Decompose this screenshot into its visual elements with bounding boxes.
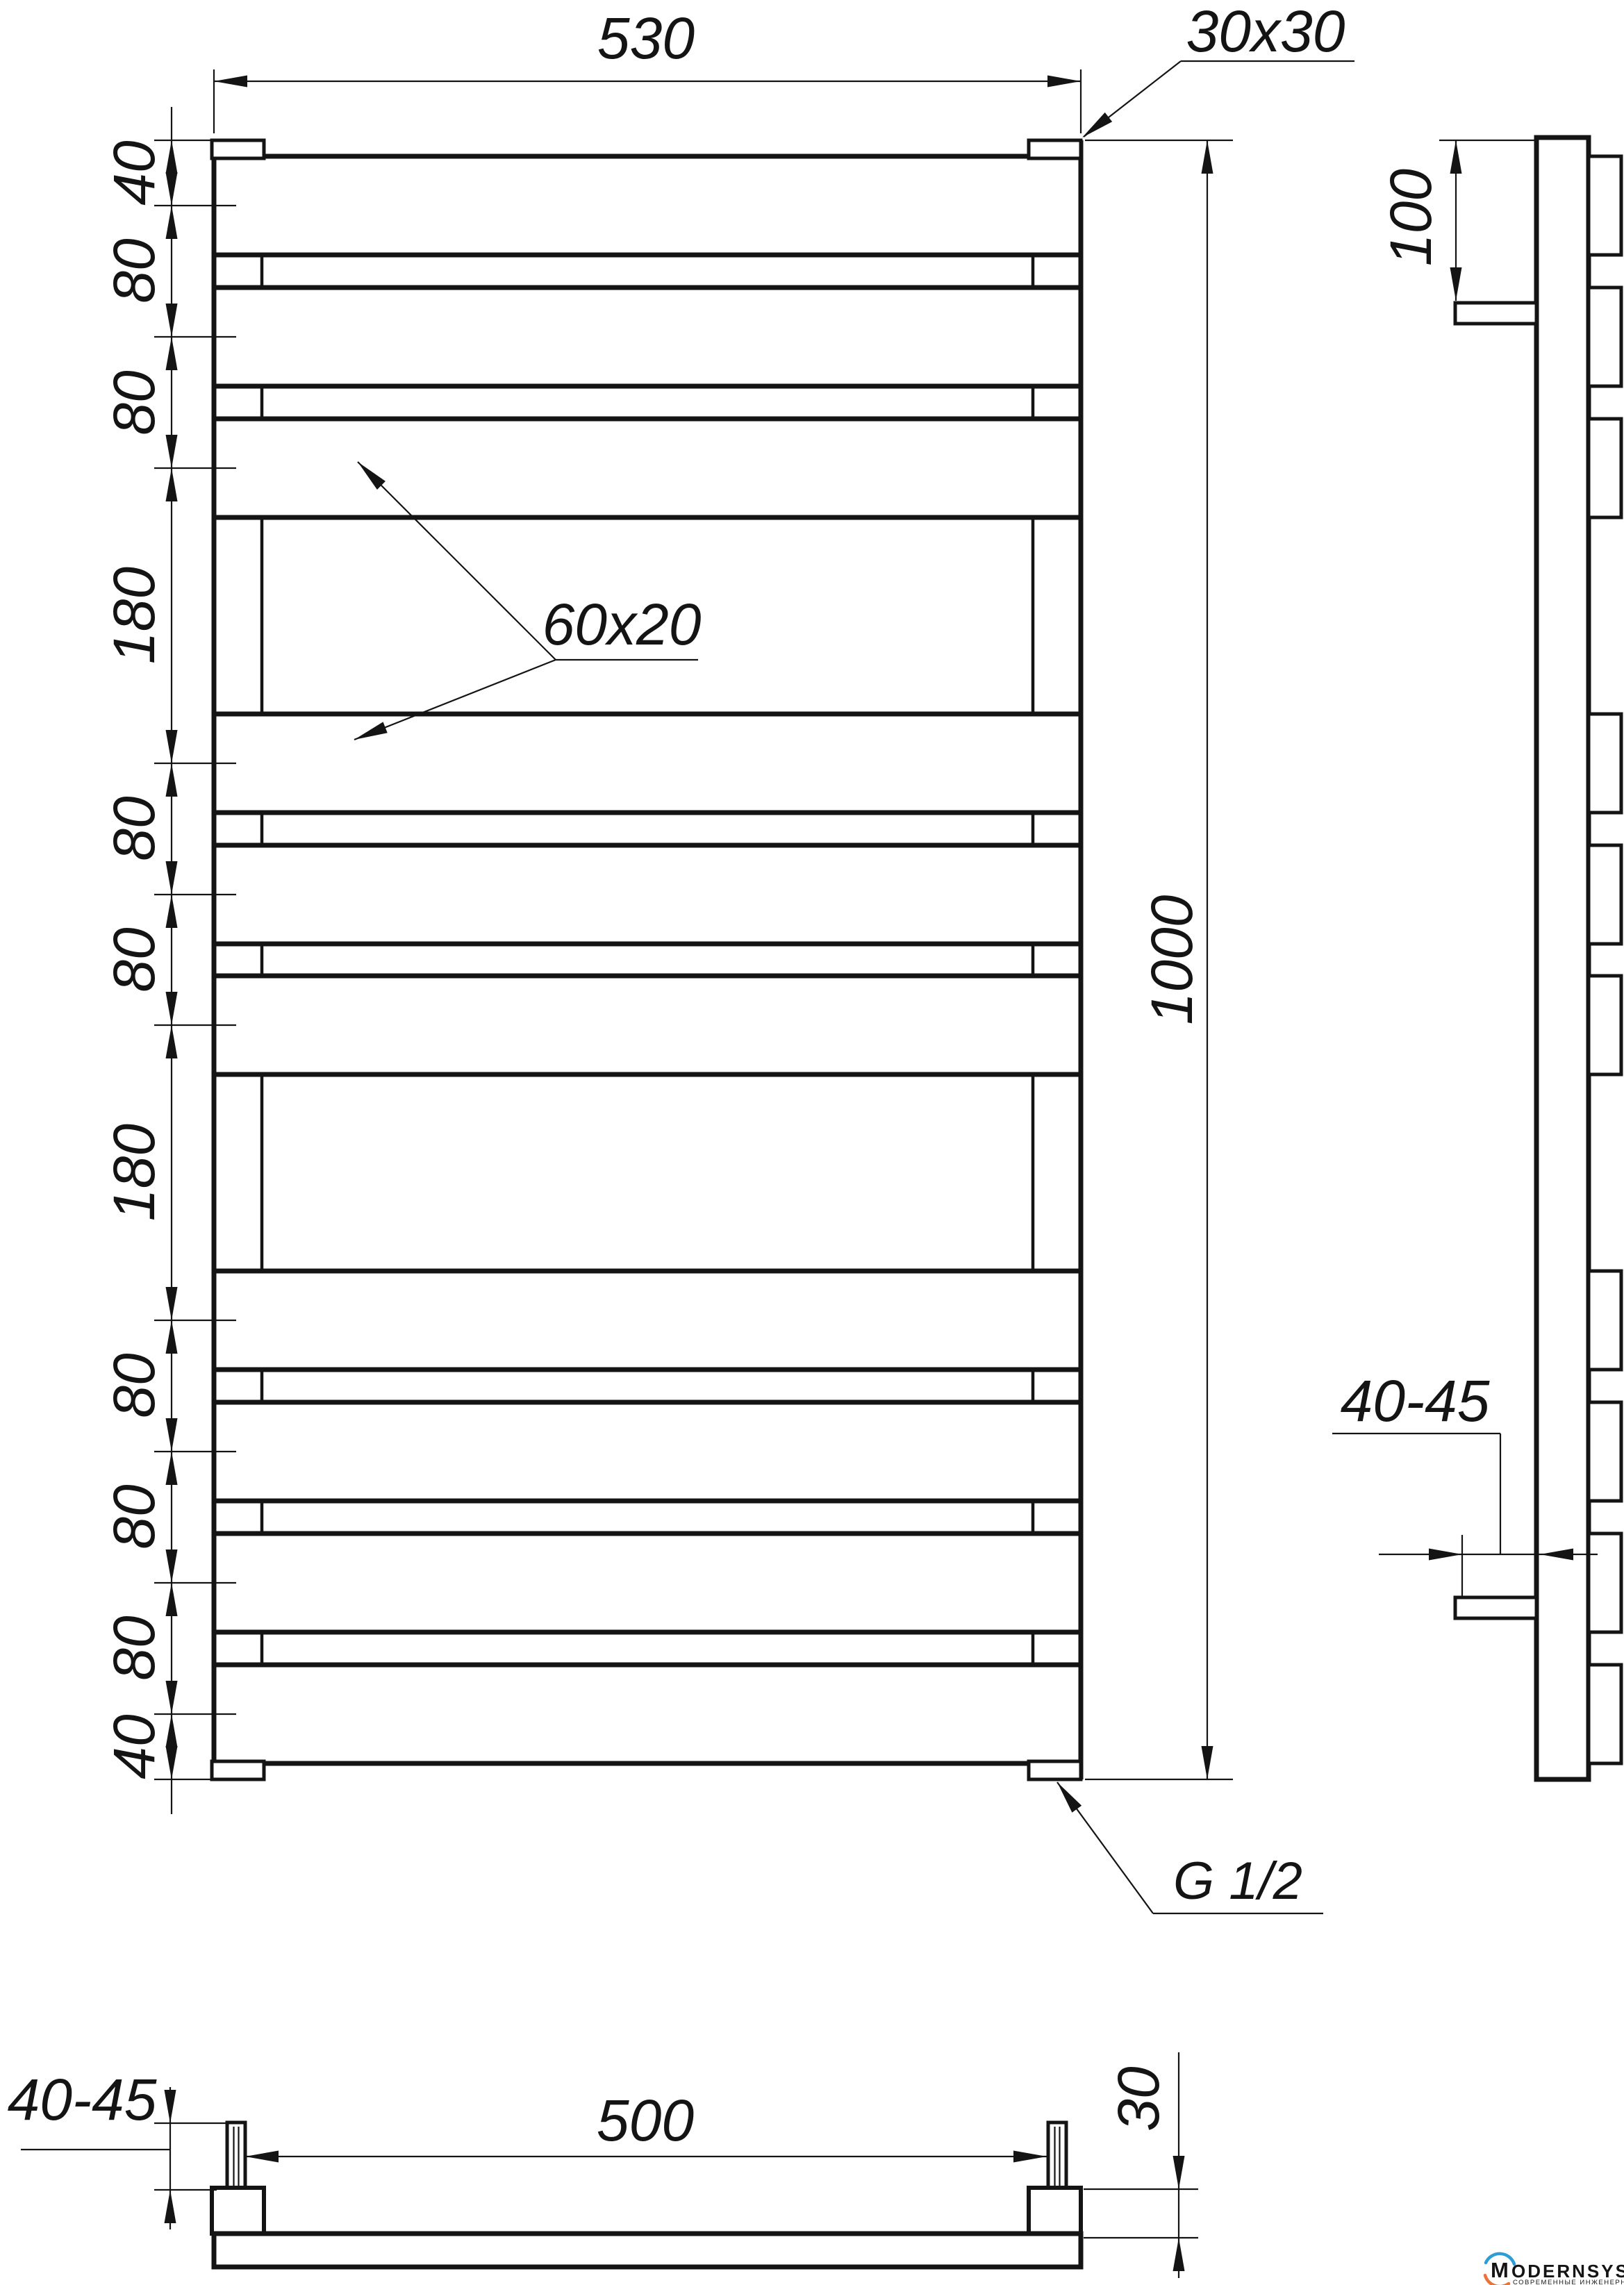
dimension-arrowhead — [166, 1418, 178, 1452]
side-rung-profile — [1589, 1402, 1621, 1501]
dim-bracket-offset: 100 — [1378, 169, 1443, 266]
dimension-arrowhead — [166, 435, 178, 468]
dimension-arrowhead — [166, 730, 178, 763]
dimension-arrowhead — [166, 337, 178, 370]
front-view-geometry — [212, 140, 1081, 1779]
dimension-arrowhead — [166, 1320, 178, 1354]
dim-spacing-180-2: 180 — [101, 1124, 167, 1221]
side-wall-bracket-top — [1455, 303, 1536, 324]
dim-overall-height: 1000 — [1139, 895, 1204, 1024]
towel-rail-technical-drawing: 530 30x30 60x20 1000 G 1/2 40 80 80 180 … — [0, 0, 1624, 2285]
front-rung — [214, 1271, 1081, 1370]
dim-spacing-80-3: 80 — [101, 796, 167, 861]
dim-spacing-80-5: 80 — [101, 1353, 167, 1418]
dimension-arrowhead — [1450, 140, 1462, 174]
side-rung-profile — [1589, 714, 1621, 813]
side-rung-profile — [1589, 156, 1621, 255]
front-rung — [214, 419, 1081, 517]
dim-wall-clearance-side: 40-45 — [1341, 1368, 1490, 1434]
side-rung-profile — [1589, 1534, 1621, 1632]
bottom-collector-left — [212, 2188, 264, 2234]
dimension-arrowhead — [1450, 267, 1462, 301]
dimension-arrowhead — [166, 1746, 178, 1779]
dimension-arrowhead — [165, 2090, 176, 2123]
dimension-arrowhead — [166, 1681, 178, 1714]
front-rung — [214, 288, 1081, 386]
front-rung — [214, 1665, 1081, 1763]
dim-spacing-80-7: 80 — [101, 1615, 167, 1681]
dimension-lines — [21, 61, 1598, 2278]
dim-spacing-bottom-40: 40 — [101, 1714, 167, 1779]
side-view-geometry — [1455, 138, 1621, 1779]
bottom-collector-right — [1029, 2188, 1081, 2234]
dimension-arrowhead — [166, 861, 178, 895]
dimension-arrowhead — [166, 1025, 178, 1058]
dim-spacing-180-1: 180 — [101, 567, 167, 664]
dimension-arrowhead — [166, 206, 178, 239]
dimension-arrowhead — [166, 895, 178, 928]
dimension-arrowhead — [166, 1287, 178, 1320]
front-rung — [214, 1534, 1081, 1632]
dim-wall-clearance-bottom: 40-45 — [8, 2067, 157, 2132]
dim-spacing-80-2: 80 — [101, 370, 167, 435]
mount-tab-bottom-left — [212, 1761, 264, 1779]
dimension-arrowhead — [1173, 2238, 1185, 2271]
side-wall-bracket-bottom — [1455, 1597, 1536, 1618]
dim-collector-depth: 30 — [1106, 2066, 1171, 2132]
logo-wordmark-initial: M — [1491, 2258, 1510, 2282]
mount-tab-bottom-right — [1029, 1761, 1081, 1779]
dim-spacing-80-6: 80 — [101, 1484, 167, 1549]
side-rung-profile — [1589, 1665, 1621, 1763]
dimension-arrowhead — [1047, 76, 1081, 88]
brand-logo: M ODERNSYS СОВРЕМЕННЫЕ ИНЖЕНЕРНЫЕ СИСТЕМ… — [1485, 2254, 1624, 2285]
dimension-arrowhead — [166, 1583, 178, 1616]
side-rung-profile — [1589, 1271, 1621, 1370]
dimension-arrowhead — [166, 992, 178, 1025]
dim-spacing-80-4: 80 — [101, 927, 167, 992]
dimension-arrowhead — [165, 2190, 176, 2223]
dim-thread-size: G 1/2 — [1173, 1852, 1302, 1911]
dimension-arrowhead — [1173, 2156, 1185, 2189]
dimension-arrowhead — [166, 304, 178, 337]
dimension-arrowhead — [166, 468, 178, 501]
dimension-arrowhead — [1013, 2151, 1047, 2163]
dim-spacing-80-1: 80 — [101, 238, 167, 304]
dimension-arrowhead — [166, 1549, 178, 1583]
dimension-arrowhead — [166, 1714, 178, 1747]
dimension-arrowhead — [1202, 140, 1213, 174]
dimension-arrowhead — [166, 763, 178, 797]
dim-spacing-top-40: 40 — [101, 140, 167, 206]
bottom-bracket-right — [1048, 2122, 1066, 2188]
mount-tab-top-left — [212, 140, 264, 158]
drawing-sheet: 530 30x30 60x20 1000 G 1/2 40 80 80 180 … — [0, 0, 1624, 2285]
dimension-arrowhead — [1202, 1746, 1213, 1779]
front-rung — [214, 156, 1081, 255]
bottom-panel — [214, 2234, 1081, 2267]
bottom-bracket-left — [227, 2122, 245, 2188]
front-rung — [214, 1402, 1081, 1501]
side-rung-profile — [1589, 419, 1621, 517]
dimension-arrowhead — [166, 1452, 178, 1485]
dimension-arrowhead — [166, 172, 178, 206]
front-rung — [214, 976, 1081, 1074]
mount-tab-top-right — [1029, 140, 1081, 158]
dim-collector-profile: 30x30 — [1186, 0, 1345, 64]
dimension-arrowhead — [166, 140, 178, 174]
side-collector-tube — [1536, 138, 1589, 1779]
front-rung — [214, 714, 1081, 813]
side-rung-profile — [1589, 845, 1621, 944]
dimension-arrowhead — [214, 76, 247, 88]
front-rung — [214, 845, 1081, 944]
dimension-arrowhead — [1057, 1782, 1082, 1813]
dimension-arrowhead — [1082, 113, 1112, 138]
dimension-arrowhead — [1429, 1549, 1462, 1561]
side-rung-profile — [1589, 288, 1621, 386]
dim-rung-profile: 60x20 — [542, 592, 702, 657]
dim-overall-width: 530 — [597, 6, 695, 71]
side-rung-profile — [1589, 976, 1621, 1074]
dimension-arrowhead — [245, 2151, 279, 2163]
dim-bracket-spacing: 500 — [597, 2088, 694, 2153]
logo-tagline: СОВРЕМЕННЫЕ ИНЖЕНЕРНЫЕ СИСТЕМЫ — [1513, 2279, 1624, 2285]
